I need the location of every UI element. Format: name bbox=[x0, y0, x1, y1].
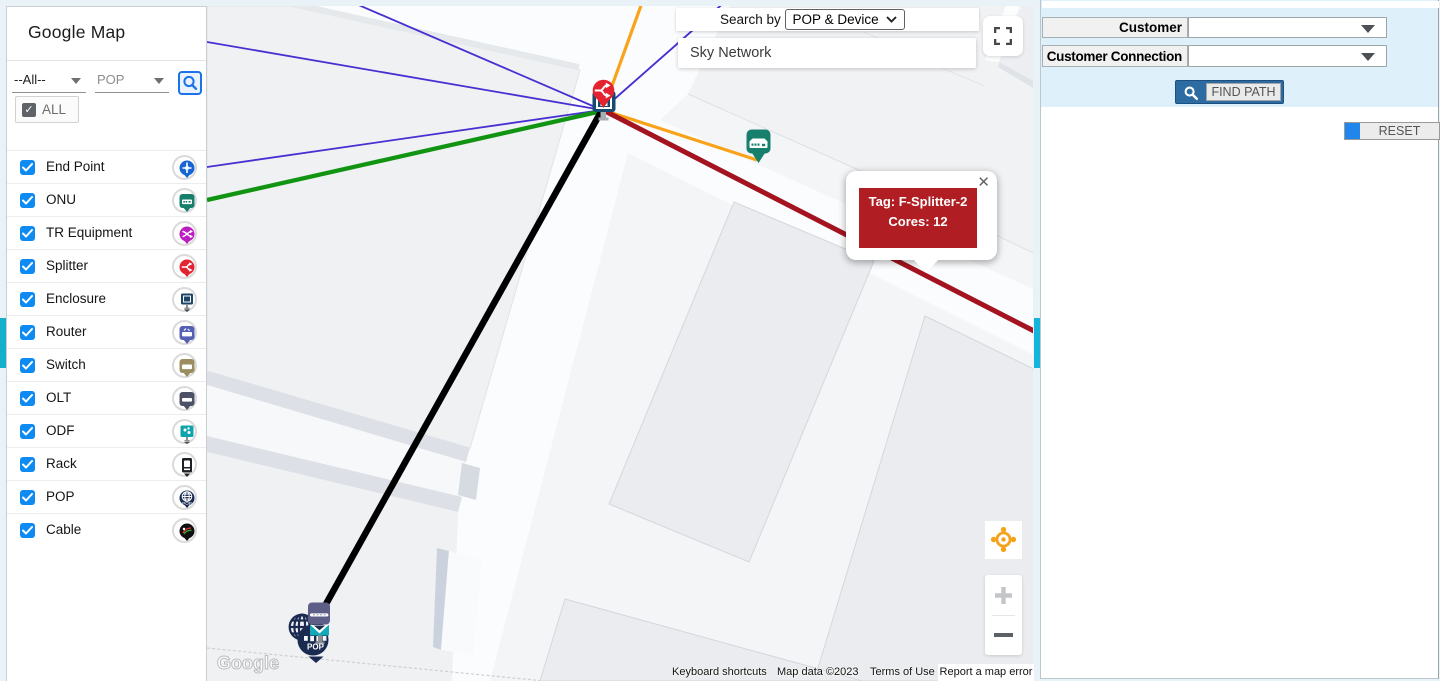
svg-text:POP: POP bbox=[307, 643, 325, 652]
svg-text:POP: POP bbox=[182, 501, 192, 506]
